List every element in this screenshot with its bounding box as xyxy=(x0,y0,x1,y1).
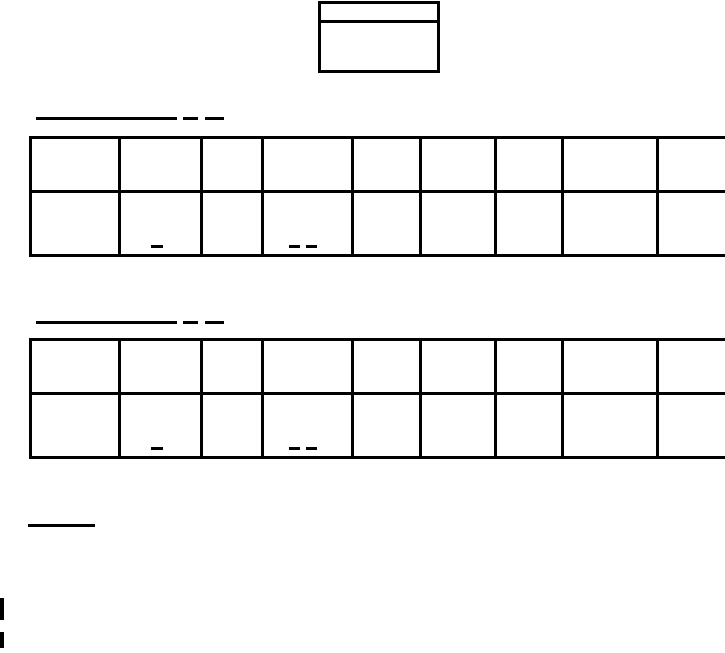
blank-underscore-mark xyxy=(289,245,300,248)
table-cell xyxy=(31,192,120,256)
table-cell xyxy=(658,394,725,458)
heading-underline xyxy=(36,117,177,120)
section-2-table xyxy=(29,338,725,459)
table-cell xyxy=(563,394,658,458)
table-row xyxy=(31,192,725,256)
blank-underscore-mark xyxy=(151,245,163,248)
document-page xyxy=(0,0,725,653)
table-cell xyxy=(658,138,725,192)
table-cell xyxy=(120,394,202,458)
table-cell xyxy=(496,394,563,458)
table-cell xyxy=(496,192,563,256)
header-box xyxy=(318,1,440,73)
heading-underline xyxy=(36,321,177,324)
form-table xyxy=(29,136,725,257)
table-cell xyxy=(120,340,202,394)
table-cell xyxy=(353,340,421,394)
blank-underscore-mark xyxy=(306,447,317,450)
table-cell xyxy=(31,138,120,192)
table-row xyxy=(31,394,725,458)
table-cell xyxy=(421,340,496,394)
table-cell xyxy=(31,340,120,394)
table-cell xyxy=(202,394,263,458)
table-cell xyxy=(563,138,658,192)
table-cell xyxy=(202,138,263,192)
table-cell xyxy=(120,138,202,192)
table-row xyxy=(31,340,725,394)
header-box-bottom-row xyxy=(321,23,437,89)
table-cell xyxy=(353,138,421,192)
edge-artifact-bar xyxy=(0,598,4,620)
blank-underscore-mark xyxy=(289,447,300,450)
table-cell xyxy=(263,138,353,192)
heading-dash xyxy=(183,117,198,120)
table-cell xyxy=(31,394,120,458)
table-row xyxy=(31,138,725,192)
table-cell xyxy=(421,394,496,458)
form-table xyxy=(29,338,725,459)
section-2-heading-rule xyxy=(0,321,725,325)
table-cell xyxy=(263,394,353,458)
footer-underline xyxy=(28,524,95,527)
table-cell xyxy=(353,192,421,256)
heading-dash xyxy=(205,321,224,324)
table-cell xyxy=(263,340,353,394)
heading-dash xyxy=(205,117,224,120)
blank-underscore-mark xyxy=(306,245,317,248)
table-cell xyxy=(658,340,725,394)
table-cell xyxy=(353,394,421,458)
section-1-heading-rule xyxy=(0,117,725,121)
table-cell xyxy=(421,138,496,192)
table-cell xyxy=(496,340,563,394)
table-cell xyxy=(202,192,263,256)
table-cell xyxy=(563,192,658,256)
blank-underscore-mark xyxy=(151,447,163,450)
table-cell xyxy=(658,192,725,256)
section-1-table xyxy=(29,136,725,257)
table-cell xyxy=(496,138,563,192)
table-cell xyxy=(120,192,202,256)
edge-artifact-bar xyxy=(0,632,4,648)
heading-dash xyxy=(183,321,198,324)
header-box-top-row xyxy=(321,4,437,23)
table-cell xyxy=(263,192,353,256)
table-cell xyxy=(202,340,263,394)
table-cell xyxy=(563,340,658,394)
table-cell xyxy=(421,192,496,256)
